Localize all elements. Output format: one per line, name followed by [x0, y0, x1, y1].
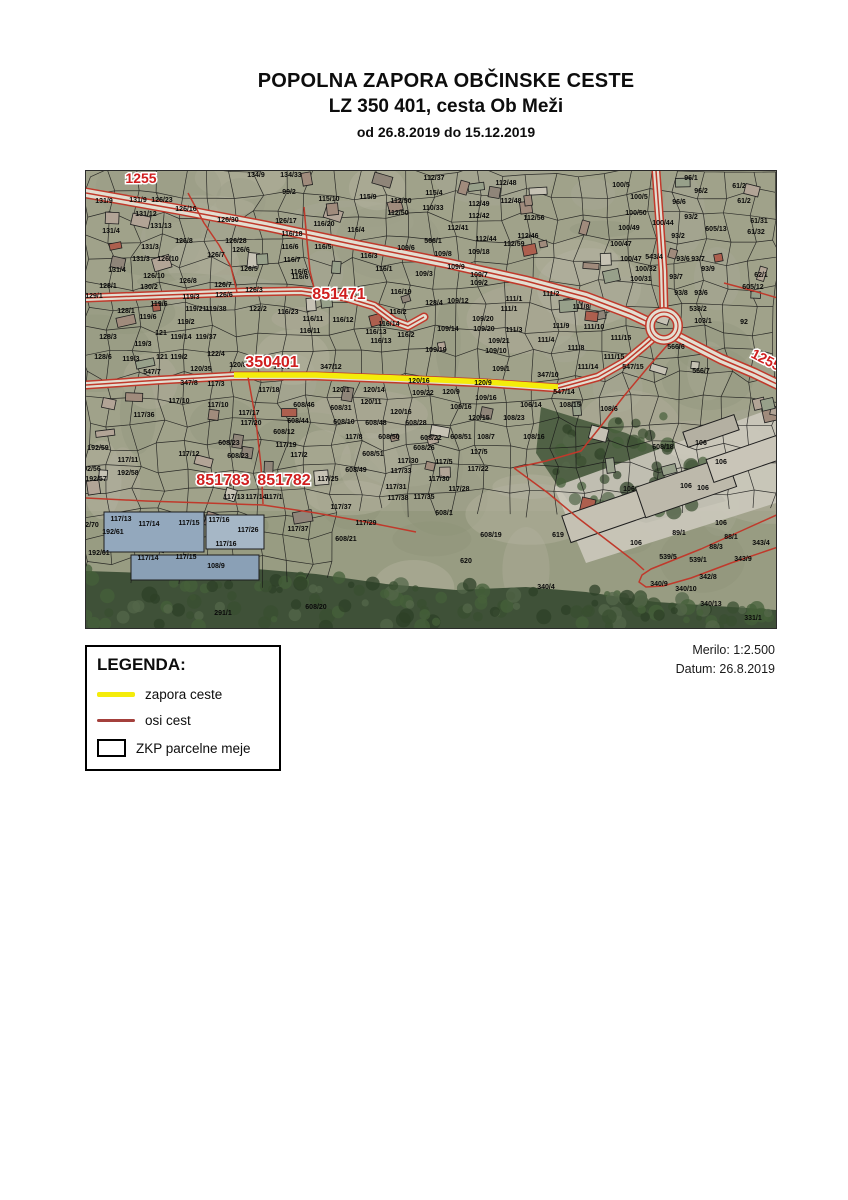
svg-text:608/20: 608/20: [305, 604, 327, 611]
legend-box: LEGENDA: zapora ceste osi cest ZKP parce…: [85, 645, 281, 771]
svg-text:120/8: 120/8: [229, 362, 247, 369]
svg-text:111/8: 111/8: [568, 345, 585, 352]
svg-text:547/14: 547/14: [553, 389, 575, 396]
svg-text:88/1: 88/1: [724, 534, 738, 541]
svg-text:117/25: 117/25: [317, 476, 338, 483]
svg-text:112/49: 112/49: [468, 201, 489, 208]
svg-text:117/11: 117/11: [118, 457, 139, 464]
svg-text:608/51: 608/51: [450, 434, 472, 441]
svg-text:192/56: 192/56: [86, 466, 101, 473]
svg-text:61/31: 61/31: [750, 218, 768, 225]
svg-text:112/59: 112/59: [503, 241, 524, 248]
svg-text:112/37: 112/37: [423, 175, 444, 182]
svg-text:192/58: 192/58: [117, 470, 139, 477]
svg-text:119/2: 119/2: [170, 354, 187, 361]
svg-text:131/3: 131/3: [141, 244, 159, 251]
svg-text:116/20: 116/20: [313, 221, 334, 228]
svg-text:109/21: 109/21: [488, 338, 510, 345]
svg-text:134/9: 134/9: [247, 172, 265, 179]
svg-text:116/3: 116/3: [360, 253, 377, 260]
svg-text:112/42: 112/42: [468, 213, 489, 220]
svg-text:109/7: 109/7: [470, 272, 488, 279]
svg-text:119/3: 119/3: [134, 341, 151, 348]
svg-text:331/1: 331/1: [744, 615, 762, 622]
svg-text:111/3: 111/3: [506, 327, 523, 334]
svg-text:117/33: 117/33: [390, 468, 411, 475]
svg-text:117/30: 117/30: [397, 458, 418, 465]
svg-text:120/15: 120/15: [468, 415, 490, 422]
cadastral-map-canvas: 131/9131/9126/23126/16131/12126/30126/17…: [86, 171, 776, 628]
svg-text:538/2: 538/2: [689, 306, 707, 313]
svg-text:109/18: 109/18: [468, 249, 490, 256]
svg-text:109/8: 109/8: [434, 251, 452, 258]
svg-text:117/15: 117/15: [178, 520, 199, 527]
svg-text:120/1: 120/1: [332, 387, 350, 394]
svg-text:109/3: 109/3: [415, 271, 433, 278]
svg-text:109/20: 109/20: [473, 326, 495, 333]
svg-text:106: 106: [680, 483, 692, 490]
svg-text:100/44: 100/44: [652, 220, 674, 227]
svg-text:119/37: 119/37: [195, 334, 216, 341]
svg-text:116/14: 116/14: [378, 321, 399, 328]
svg-text:116/23: 116/23: [277, 309, 298, 316]
svg-text:126/23: 126/23: [151, 197, 173, 204]
svg-text:117/17: 117/17: [238, 410, 259, 417]
route-label-1255: 1255: [125, 171, 156, 186]
svg-text:106/14: 106/14: [520, 402, 542, 409]
svg-text:116/5: 116/5: [314, 244, 331, 251]
svg-text:116/11: 116/11: [300, 328, 321, 335]
svg-text:116/6: 116/6: [290, 269, 307, 276]
svg-text:126/6: 126/6: [215, 292, 233, 299]
svg-text:111/2: 111/2: [543, 291, 560, 298]
svg-text:126/17: 126/17: [275, 218, 297, 225]
svg-text:119/6: 119/6: [139, 314, 156, 321]
svg-text:117/29: 117/29: [355, 520, 376, 527]
svg-text:109/14: 109/14: [437, 326, 459, 333]
svg-text:131/3: 131/3: [132, 256, 150, 263]
svg-text:128/6: 128/6: [94, 354, 112, 361]
svg-text:111/1: 111/1: [506, 296, 523, 303]
svg-text:112/48: 112/48: [500, 198, 521, 205]
svg-text:117/14: 117/14: [138, 521, 159, 528]
svg-text:126/5: 126/5: [240, 266, 258, 273]
svg-text:120/9: 120/9: [474, 380, 492, 387]
svg-text:100/47: 100/47: [610, 241, 632, 248]
svg-text:100/50: 100/50: [625, 210, 647, 217]
svg-text:117/8: 117/8: [345, 434, 362, 441]
svg-text:116/11: 116/11: [303, 316, 324, 323]
svg-text:126/10: 126/10: [157, 256, 179, 263]
svg-text:126/10: 126/10: [143, 273, 165, 280]
svg-text:130/2: 130/2: [140, 284, 158, 291]
svg-text:108/16: 108/16: [523, 434, 545, 441]
svg-text:112/50: 112/50: [387, 210, 408, 217]
svg-text:608/21: 608/21: [335, 536, 357, 543]
svg-text:115/4: 115/4: [425, 190, 442, 197]
svg-text:111/4: 111/4: [538, 337, 555, 344]
svg-text:119/14: 119/14: [170, 334, 191, 341]
svg-text:117/13: 117/13: [223, 494, 244, 501]
svg-text:112/48: 112/48: [495, 180, 516, 187]
svg-text:109/12: 109/12: [447, 298, 469, 305]
svg-text:340/4: 340/4: [537, 584, 555, 591]
legend-item-label: zapora ceste: [145, 687, 222, 702]
svg-text:347/10: 347/10: [537, 372, 559, 379]
svg-text:100/5: 100/5: [630, 194, 648, 201]
svg-text:342/8: 342/8: [699, 574, 717, 581]
svg-text:117/18: 117/18: [258, 387, 279, 394]
title-block: POPOLNA ZAPORA OBČINSKE CESTE LZ 350 401…: [22, 70, 848, 140]
svg-text:128/4: 128/4: [425, 300, 443, 307]
svg-text:128/3: 128/3: [99, 334, 117, 341]
svg-text:117/28: 117/28: [448, 486, 469, 493]
map-scale: Merilo: 1:2.500: [575, 641, 775, 660]
svg-text:112/44: 112/44: [475, 236, 496, 243]
svg-text:291/1: 291/1: [214, 610, 232, 617]
svg-text:608/49: 608/49: [345, 467, 367, 474]
legend-item-parcel-boundary: ZKP parcelne meje: [97, 739, 269, 757]
svg-text:117/36: 117/36: [133, 412, 154, 419]
svg-text:192/61: 192/61: [102, 529, 124, 536]
svg-text:608/46: 608/46: [293, 402, 315, 409]
svg-text:608/10: 608/10: [333, 419, 355, 426]
svg-text:608/50: 608/50: [378, 434, 400, 441]
svg-text:129/1: 129/1: [86, 293, 103, 300]
svg-text:88/3: 88/3: [709, 544, 723, 551]
svg-text:608/51: 608/51: [362, 451, 384, 458]
svg-text:117/26: 117/26: [237, 527, 258, 534]
svg-text:112/41: 112/41: [447, 225, 468, 232]
svg-text:93/6: 93/6: [694, 290, 708, 297]
svg-text:547/7: 547/7: [143, 369, 161, 376]
svg-text:116/12: 116/12: [332, 317, 353, 324]
svg-text:121: 121: [156, 354, 168, 361]
svg-text:115/9: 115/9: [359, 194, 376, 201]
svg-text:116/2: 116/2: [397, 332, 414, 339]
svg-text:126/30: 126/30: [217, 217, 239, 224]
svg-text:131/13: 131/13: [150, 223, 172, 230]
route-label-851471: 851471: [312, 286, 365, 303]
svg-text:112/56: 112/56: [523, 215, 544, 222]
svg-text:117/14: 117/14: [245, 494, 266, 501]
svg-text:2/70: 2/70: [86, 522, 99, 529]
svg-text:117/5: 117/5: [435, 459, 452, 466]
svg-text:96/2: 96/2: [694, 188, 708, 195]
svg-text:566/6: 566/6: [667, 344, 685, 351]
svg-text:100/5: 100/5: [612, 182, 630, 189]
svg-text:608/23: 608/23: [218, 440, 240, 447]
svg-text:134/33: 134/33: [280, 172, 302, 179]
svg-text:119/6: 119/6: [150, 301, 167, 308]
svg-text:111/8: 111/8: [573, 304, 590, 311]
svg-text:347/12: 347/12: [320, 364, 342, 371]
svg-text:115/10: 115/10: [318, 196, 339, 203]
svg-text:61/2: 61/2: [732, 183, 746, 190]
svg-text:99/2: 99/2: [282, 189, 296, 196]
svg-text:109/2: 109/2: [470, 280, 488, 287]
svg-text:608/28: 608/28: [405, 420, 427, 427]
svg-text:608/26: 608/26: [413, 445, 435, 452]
svg-text:126/3: 126/3: [245, 287, 263, 294]
svg-text:116/18: 116/18: [281, 231, 302, 238]
svg-text:106: 106: [630, 540, 642, 547]
svg-text:122/4: 122/4: [207, 351, 225, 358]
svg-text:92: 92: [740, 319, 748, 326]
svg-text:111/1: 111/1: [501, 306, 518, 313]
svg-text:131/9: 131/9: [95, 198, 113, 205]
road-axis-swatch: [97, 719, 135, 722]
svg-text:116/19: 116/19: [390, 289, 411, 296]
svg-text:108/15: 108/15: [559, 402, 581, 409]
document-date-range: od 26.8.2019 do 15.12.2019: [22, 124, 848, 140]
svg-text:119/21: 119/21: [185, 306, 206, 313]
svg-text:109/19: 109/19: [425, 347, 447, 354]
svg-text:117/12: 117/12: [178, 451, 199, 458]
svg-text:543/4: 543/4: [645, 254, 663, 261]
svg-text:539/5: 539/5: [659, 554, 677, 561]
svg-text:117/13: 117/13: [110, 516, 131, 523]
svg-text:117/22: 117/22: [467, 466, 488, 473]
svg-text:61/2: 61/2: [737, 198, 751, 205]
legend-title: LEGENDA:: [97, 655, 269, 675]
svg-text:121: 121: [155, 330, 167, 337]
svg-text:116/6: 116/6: [281, 244, 298, 251]
svg-text:100/47: 100/47: [620, 256, 642, 263]
svg-text:608/31: 608/31: [330, 405, 352, 412]
svg-text:131/4: 131/4: [108, 267, 126, 274]
svg-text:62/1: 62/1: [754, 272, 768, 279]
svg-text:117/37: 117/37: [287, 526, 308, 533]
svg-text:608/18: 608/18: [652, 444, 674, 451]
svg-text:608/23: 608/23: [227, 453, 249, 460]
map-metadata: Merilo: 1:2.500 Datum: 26.8.2019: [575, 641, 775, 679]
svg-text:117/35: 117/35: [413, 494, 434, 501]
svg-text:120/11: 120/11: [360, 399, 381, 406]
svg-text:126/8: 126/8: [179, 278, 197, 285]
svg-text:106: 106: [695, 440, 707, 447]
svg-text:131/9: 131/9: [129, 197, 147, 204]
svg-text:106: 106: [623, 486, 635, 493]
svg-text:116/13: 116/13: [365, 329, 386, 336]
svg-text:608/44: 608/44: [287, 418, 309, 425]
svg-text:120/14: 120/14: [363, 387, 385, 394]
svg-text:126/8: 126/8: [175, 238, 193, 245]
svg-text:347/8: 347/8: [180, 380, 198, 387]
legend-item-road-axis: osi cest: [97, 713, 269, 728]
svg-text:605/12: 605/12: [742, 284, 764, 291]
svg-text:120/16: 120/16: [390, 409, 412, 416]
svg-text:117/19: 117/19: [275, 442, 296, 449]
svg-text:100/32: 100/32: [635, 266, 657, 273]
svg-text:111/15: 111/15: [604, 354, 625, 361]
svg-text:566/1: 566/1: [424, 238, 442, 245]
svg-text:117/3: 117/3: [207, 381, 224, 388]
svg-text:566/7: 566/7: [692, 368, 710, 375]
svg-text:119/3: 119/3: [122, 356, 139, 363]
svg-text:117/10: 117/10: [168, 398, 189, 405]
svg-text:340/13: 340/13: [700, 601, 722, 608]
svg-text:608/22: 608/22: [420, 435, 442, 442]
svg-text:109/16: 109/16: [450, 404, 472, 411]
svg-text:117/16: 117/16: [208, 517, 229, 524]
svg-text:120/16: 120/16: [408, 378, 430, 385]
svg-text:61/32: 61/32: [747, 229, 765, 236]
svg-text:126/7: 126/7: [214, 282, 232, 289]
svg-text:117/37: 117/37: [330, 504, 351, 511]
svg-text:117/30: 117/30: [428, 476, 449, 483]
svg-text:103/1: 103/1: [694, 318, 712, 325]
svg-text:93/2: 93/2: [684, 214, 698, 221]
svg-text:109/20: 109/20: [472, 316, 494, 323]
svg-text:112/46: 112/46: [517, 233, 538, 240]
svg-text:619: 619: [552, 532, 564, 539]
svg-text:120/35: 120/35: [190, 366, 212, 373]
svg-text:108/7: 108/7: [477, 434, 495, 441]
svg-text:131/12: 131/12: [135, 211, 157, 218]
svg-text:106: 106: [715, 520, 727, 527]
parcel-boundary-swatch: [97, 739, 126, 757]
svg-text:116/4: 116/4: [347, 227, 364, 234]
svg-text:116/13: 116/13: [370, 338, 391, 345]
svg-text:111/10: 111/10: [584, 324, 605, 331]
svg-text:119/2: 119/2: [177, 319, 194, 326]
svg-text:119/38: 119/38: [205, 306, 226, 313]
svg-text:109/10: 109/10: [485, 348, 507, 355]
svg-text:109/1: 109/1: [492, 366, 510, 373]
svg-text:96/1: 96/1: [684, 175, 698, 182]
svg-text:128/1: 128/1: [117, 308, 135, 315]
svg-text:117/10: 117/10: [207, 402, 228, 409]
svg-text:116/1: 116/1: [375, 266, 392, 273]
svg-text:96/6: 96/6: [672, 199, 686, 206]
svg-text:340/10: 340/10: [675, 586, 697, 593]
legend-item-label: ZKP parcelne meje: [136, 741, 251, 756]
svg-text:192/61: 192/61: [88, 550, 110, 557]
svg-text:109/22: 109/22: [412, 390, 434, 397]
svg-text:93/9: 93/9: [701, 266, 715, 273]
legend-item-closure: zapora ceste: [97, 687, 269, 702]
svg-text:343/9: 343/9: [734, 556, 752, 563]
svg-text:108/23: 108/23: [503, 415, 525, 422]
svg-text:111/14: 111/14: [578, 364, 599, 371]
svg-text:608/48: 608/48: [365, 420, 387, 427]
svg-text:116/7: 116/7: [283, 257, 300, 264]
svg-text:106: 106: [715, 459, 727, 466]
closure-line-swatch: [97, 692, 135, 697]
svg-text:108/9: 108/9: [207, 563, 225, 570]
svg-text:119/3: 119/3: [182, 294, 199, 301]
svg-text:605/13: 605/13: [705, 226, 727, 233]
cadastral-map: 131/9131/9126/23126/16131/12126/30126/17…: [85, 170, 777, 629]
svg-text:93/8: 93/8: [674, 290, 688, 297]
svg-text:547/15: 547/15: [622, 364, 644, 371]
legend-item-label: osi cest: [145, 713, 191, 728]
svg-text:117/16: 117/16: [215, 541, 236, 548]
svg-text:539/1: 539/1: [689, 557, 707, 564]
svg-text:100/49: 100/49: [618, 225, 640, 232]
svg-text:93/7: 93/7: [691, 256, 705, 263]
route-label-851783: 851783: [196, 472, 249, 489]
svg-text:93/6: 93/6: [676, 256, 690, 263]
svg-text:112/50: 112/50: [390, 198, 411, 205]
svg-text:126/28: 126/28: [225, 238, 247, 245]
svg-text:620: 620: [460, 558, 472, 565]
svg-text:111/9: 111/9: [553, 323, 570, 330]
map-date: Datum: 26.8.2019: [575, 660, 775, 679]
svg-text:111/15: 111/15: [611, 335, 632, 342]
svg-text:109/9: 109/9: [447, 264, 465, 271]
svg-text:128/1: 128/1: [99, 283, 117, 290]
svg-text:106: 106: [697, 485, 709, 492]
svg-text:117/5: 117/5: [470, 449, 487, 456]
route-label-350401: 350401: [245, 354, 298, 371]
svg-text:122/2: 122/2: [249, 306, 267, 313]
svg-text:116/2: 116/2: [389, 309, 406, 316]
svg-text:117/38: 117/38: [387, 495, 408, 502]
svg-text:126/16: 126/16: [175, 206, 197, 213]
svg-text:131/4: 131/4: [102, 228, 120, 235]
svg-text:608/19: 608/19: [480, 532, 502, 539]
svg-text:117/15: 117/15: [175, 554, 196, 561]
svg-text:108/6: 108/6: [600, 406, 618, 413]
svg-text:110/33: 110/33: [422, 205, 443, 212]
svg-text:608/12: 608/12: [273, 429, 295, 436]
document-subtitle: LZ 350 401, cesta Ob Meži: [22, 96, 848, 118]
svg-text:192/59: 192/59: [87, 445, 109, 452]
svg-text:120/9: 120/9: [442, 389, 460, 396]
svg-text:117/31: 117/31: [385, 484, 406, 491]
svg-text:117/2: 117/2: [290, 452, 307, 459]
document-title: POPOLNA ZAPORA OBČINSKE CESTE: [22, 70, 848, 93]
svg-text:126/6: 126/6: [232, 247, 250, 254]
svg-text:117/1: 117/1: [265, 494, 282, 501]
svg-text:100/31: 100/31: [630, 276, 652, 283]
svg-text:126/7: 126/7: [207, 252, 225, 259]
svg-text:109/6: 109/6: [397, 245, 415, 252]
svg-text:89/1: 89/1: [672, 530, 686, 537]
svg-text:192/57: 192/57: [86, 476, 107, 483]
svg-text:93/7: 93/7: [669, 274, 683, 281]
route-label-851782: 851782: [257, 472, 310, 489]
svg-text:117/14: 117/14: [137, 555, 158, 562]
svg-text:608/1: 608/1: [435, 510, 453, 517]
svg-text:343/4: 343/4: [752, 540, 770, 547]
svg-text:340/9: 340/9: [650, 581, 668, 588]
svg-text:117/20: 117/20: [240, 420, 261, 427]
svg-text:93/2: 93/2: [671, 233, 685, 240]
svg-text:109/16: 109/16: [475, 395, 497, 402]
